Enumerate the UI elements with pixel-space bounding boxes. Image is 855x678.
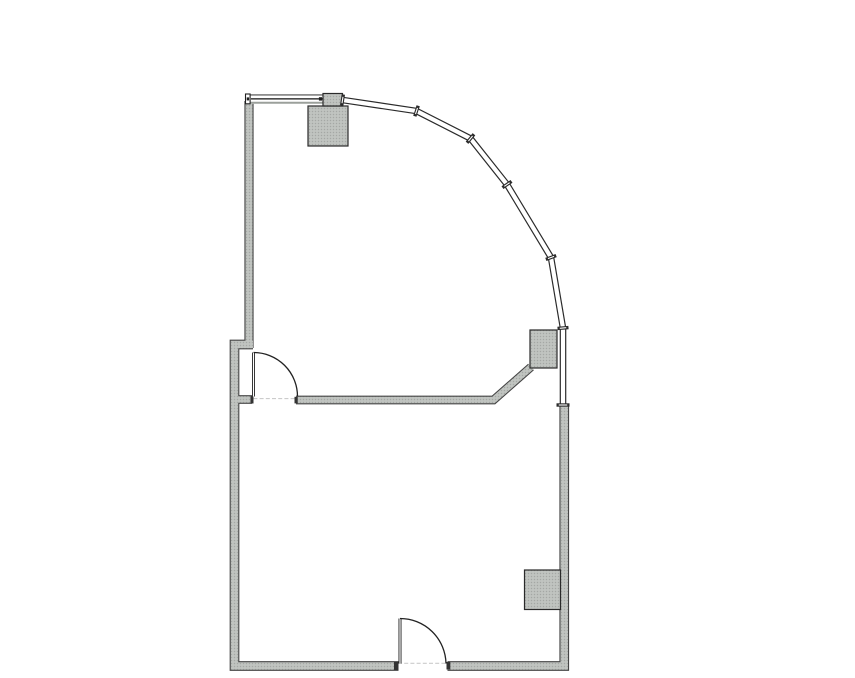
entry-door-jamb-cap-1 [447,662,451,670]
walls [235,101,565,666]
interior-door-jamb-cap-1 [295,397,298,404]
entry-door [394,618,450,670]
column-bottom-right [525,570,561,610]
floor-plan-svg [0,0,855,678]
curtain-wall-mullion-joint-core-5 [560,328,566,329]
column-mid-right [530,330,557,368]
window-top-right-tick [319,97,322,100]
interior-door [251,353,298,404]
entry-door-swing-arc [400,618,446,663]
wall-left-lower-and-bottom-outline [235,345,399,667]
window-top-left-tick [247,97,249,100]
wall-bottom-right-and-right-outline [448,406,565,666]
window-mullion-block [323,94,343,107]
floor-plan [0,0,855,678]
wall-room-divider-fill [296,367,531,400]
interior-door-jamb-cap-0 [251,396,254,404]
wall-left-lower-and-bottom-fill [235,345,399,667]
wall-bottom-right-and-right-fill [448,406,565,666]
entry-door-jamb-cap-0 [394,662,399,670]
window-top [246,94,324,104]
column-top [308,106,348,146]
interior-door-swing-arc [254,353,298,397]
